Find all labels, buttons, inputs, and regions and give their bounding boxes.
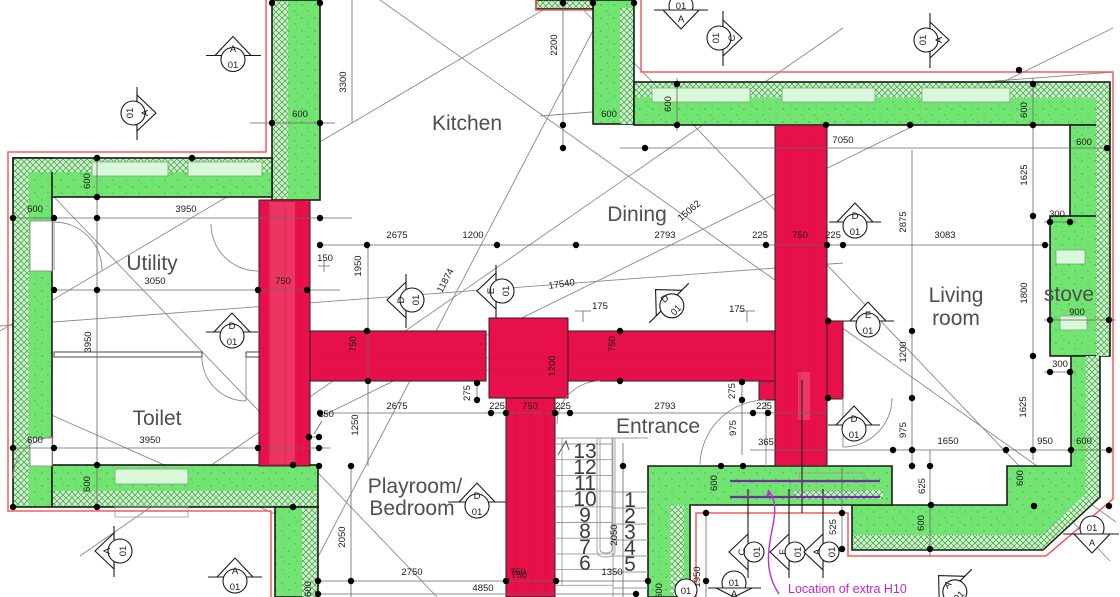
- svg-text:3950: 3950: [175, 204, 196, 215]
- svg-text:Kitchen: Kitchen: [432, 112, 502, 135]
- svg-text:01: 01: [472, 507, 483, 518]
- svg-text:01: 01: [118, 546, 129, 557]
- svg-text:2793: 2793: [654, 230, 675, 241]
- svg-text:Location of extra H10: Location of extra H10: [788, 582, 907, 596]
- svg-text:150: 150: [318, 409, 334, 420]
- svg-text:A: A: [678, 14, 685, 25]
- svg-text:A: A: [731, 589, 738, 597]
- svg-text:01: 01: [752, 547, 763, 558]
- svg-text:600: 600: [663, 96, 674, 112]
- svg-text:A: A: [934, 36, 945, 43]
- svg-text:D: D: [474, 491, 481, 502]
- svg-text:750: 750: [792, 230, 808, 241]
- svg-text:600: 600: [27, 204, 43, 215]
- svg-text:room: room: [932, 307, 980, 330]
- svg-text:300: 300: [1049, 209, 1065, 220]
- svg-text:600: 600: [709, 475, 720, 491]
- svg-text:1350: 1350: [601, 567, 622, 578]
- svg-text:950: 950: [1037, 436, 1053, 447]
- svg-text:525: 525: [828, 519, 839, 535]
- svg-text:2050: 2050: [337, 526, 348, 547]
- svg-text:175: 175: [592, 301, 608, 312]
- svg-text:01: 01: [849, 430, 860, 441]
- svg-text:600: 600: [601, 109, 617, 120]
- svg-text:600: 600: [82, 476, 93, 492]
- svg-text:A: A: [812, 548, 823, 555]
- svg-text:01: 01: [676, 1, 687, 12]
- svg-text:150: 150: [317, 253, 333, 264]
- svg-text:A: A: [230, 44, 237, 55]
- svg-text:1200: 1200: [898, 341, 909, 362]
- svg-text:225: 225: [555, 401, 571, 412]
- svg-text:Playroom/: Playroom/: [368, 475, 463, 498]
- svg-text:E: E: [865, 310, 871, 321]
- svg-text:300: 300: [1052, 359, 1068, 370]
- svg-text:Entrance: Entrance: [616, 415, 700, 438]
- svg-text:600: 600: [1076, 436, 1092, 447]
- svg-text:3300: 3300: [338, 71, 349, 92]
- svg-text:01: 01: [729, 578, 740, 589]
- svg-text:750: 750: [511, 570, 527, 581]
- svg-text:600: 600: [654, 583, 665, 597]
- svg-text:600: 600: [292, 109, 308, 120]
- svg-text:750: 750: [522, 401, 538, 412]
- svg-text:4850: 4850: [472, 583, 493, 594]
- svg-text:Dining: Dining: [607, 203, 667, 226]
- svg-text:D: D: [851, 414, 858, 425]
- svg-text:1650: 1650: [937, 436, 958, 447]
- svg-text:225: 225: [756, 401, 772, 412]
- svg-text:275: 275: [727, 383, 738, 399]
- svg-text:600: 600: [916, 515, 927, 531]
- svg-text:01: 01: [501, 286, 512, 297]
- svg-text:01: 01: [681, 586, 692, 597]
- svg-text:C: C: [737, 548, 748, 555]
- svg-text:600: 600: [303, 581, 314, 597]
- svg-text:stove: stove: [1044, 283, 1094, 306]
- svg-text:01: 01: [850, 227, 861, 238]
- svg-text:2750: 2750: [401, 567, 422, 578]
- svg-text:01: 01: [793, 547, 804, 558]
- svg-text:C: C: [727, 34, 738, 41]
- svg-text:3950: 3950: [139, 435, 160, 446]
- svg-text:D: D: [229, 321, 236, 332]
- svg-text:600: 600: [27, 435, 43, 446]
- svg-text:01: 01: [711, 33, 722, 44]
- svg-text:A: A: [232, 566, 239, 577]
- svg-text:7050: 7050: [832, 135, 853, 146]
- svg-text:1625: 1625: [1018, 396, 1029, 417]
- svg-text:2675: 2675: [386, 230, 407, 241]
- svg-text:01: 01: [230, 582, 241, 593]
- svg-text:Bedroom: Bedroom: [369, 497, 454, 520]
- svg-text:600: 600: [1015, 470, 1026, 486]
- svg-text:600: 600: [1019, 102, 1030, 118]
- svg-text:1950: 1950: [353, 255, 364, 276]
- svg-text:900: 900: [1069, 307, 1085, 318]
- svg-text:2050: 2050: [609, 524, 620, 545]
- svg-text:1625: 1625: [1019, 164, 1030, 185]
- svg-text:600: 600: [1076, 137, 1092, 148]
- svg-text:A: A: [140, 109, 151, 116]
- svg-text:3083: 3083: [934, 230, 955, 241]
- svg-text:D: D: [852, 211, 859, 222]
- svg-text:750: 750: [348, 336, 359, 352]
- svg-text:1250: 1250: [350, 414, 361, 435]
- svg-text:Living: Living: [929, 284, 984, 307]
- svg-text:275: 275: [462, 385, 473, 401]
- svg-text:625: 625: [917, 478, 928, 494]
- svg-text:225: 225: [752, 230, 768, 241]
- svg-text:1200: 1200: [462, 230, 483, 241]
- svg-text:975: 975: [898, 422, 909, 438]
- svg-text:01: 01: [125, 108, 136, 119]
- svg-text:1200: 1200: [547, 355, 558, 376]
- svg-text:01: 01: [863, 326, 874, 337]
- svg-text:01: 01: [1087, 523, 1098, 534]
- svg-text:175: 175: [729, 304, 745, 315]
- svg-text:6: 6: [579, 552, 591, 575]
- svg-text:F: F: [778, 549, 789, 555]
- svg-text:2200: 2200: [549, 34, 560, 55]
- svg-text:5: 5: [624, 553, 636, 576]
- svg-text:01: 01: [411, 295, 422, 306]
- svg-text:Toilet: Toilet: [132, 407, 181, 430]
- svg-text:Utility: Utility: [126, 252, 178, 275]
- svg-text:3950: 3950: [83, 331, 94, 352]
- svg-text:3050: 3050: [144, 276, 165, 287]
- svg-text:01: 01: [918, 35, 929, 46]
- svg-text:01: 01: [228, 60, 239, 71]
- svg-text:2793: 2793: [654, 401, 675, 412]
- svg-text:2875: 2875: [898, 211, 909, 232]
- svg-text:01: 01: [227, 337, 238, 348]
- svg-text:600: 600: [82, 173, 93, 189]
- svg-text:01: 01: [827, 547, 838, 558]
- svg-text:225: 225: [825, 230, 841, 241]
- svg-text:A: A: [102, 547, 113, 554]
- svg-text:2675: 2675: [386, 401, 407, 412]
- svg-text:365: 365: [758, 437, 774, 448]
- svg-text:E: E: [486, 288, 497, 294]
- svg-text:750: 750: [275, 276, 291, 287]
- svg-text:225: 225: [489, 401, 505, 412]
- svg-text:D: D: [396, 296, 407, 303]
- svg-text:1800: 1800: [1019, 282, 1030, 303]
- svg-text:A: A: [1089, 538, 1096, 549]
- svg-text:750: 750: [607, 336, 618, 352]
- svg-text:975: 975: [728, 420, 739, 436]
